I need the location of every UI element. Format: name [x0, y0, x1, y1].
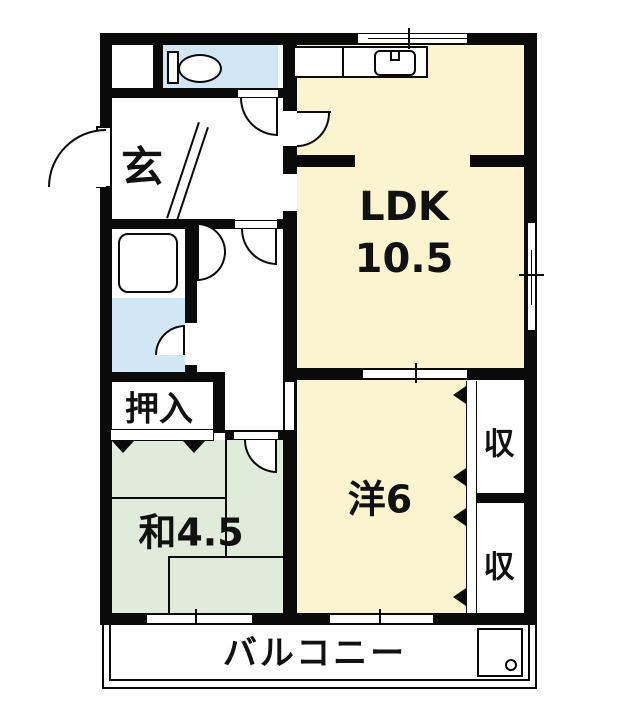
wall-bath-bottom	[100, 372, 225, 382]
wall-entrance-stub	[277, 219, 297, 229]
wall-top	[100, 33, 537, 45]
balcony-inner-line	[528, 623, 530, 681]
balcony-drain-icon	[505, 659, 517, 671]
ldk-right-window-mid	[531, 250, 532, 305]
wall-kitchen-stub-right	[470, 155, 537, 167]
western-door-opening	[284, 382, 295, 430]
storage-door-marker-icon	[453, 508, 466, 526]
closet-fusuma-track	[110, 429, 214, 441]
corridor-door-arc	[241, 229, 277, 265]
label-ldk: LDK 10.5	[355, 181, 454, 285]
hall-ldk-opening	[283, 173, 297, 212]
label-japanese-room: 和4.5	[138, 502, 243, 557]
ldk-door-leaf	[297, 111, 331, 113]
tatami-line	[168, 556, 170, 613]
storage-door-marker-icon	[453, 386, 466, 404]
toilet-bowl-icon	[178, 54, 222, 83]
wall-storeroom-right	[153, 45, 163, 98]
label-closet: 押入	[125, 382, 193, 431]
fusuma-marker-icon	[112, 441, 134, 453]
storage-door-marker-icon	[453, 588, 466, 606]
bath-door-leaf	[183, 325, 185, 355]
label-storage-top: 収	[484, 419, 515, 464]
wall-left-lower	[100, 187, 112, 625]
label-entrance: 玄	[121, 134, 163, 195]
wall-hall-ldk	[283, 45, 297, 380]
corridor-door-opening	[235, 220, 277, 229]
balcony-inner-line	[109, 623, 111, 681]
toilet-door-opening	[238, 89, 278, 98]
wall-kitchen-stub-left	[295, 155, 355, 167]
label-western-room: 洋6	[348, 469, 412, 524]
ldk-door-opening	[283, 110, 297, 147]
tatami-line	[112, 497, 225, 499]
corridor-door-leaf	[275, 229, 277, 265]
wall-left-upper	[100, 33, 112, 127]
japanese-door-leaf	[275, 440, 277, 473]
label-balcony: バルコニー	[223, 626, 407, 675]
japanese-door-opening	[234, 431, 278, 440]
kitchen-window-tick	[408, 28, 410, 49]
fusuma-marker-icon	[183, 441, 205, 453]
wall-entrance-bottom	[100, 219, 235, 229]
label-ldk-line2: 10.5	[355, 233, 454, 285]
label-ldk-line1: LDK	[355, 181, 454, 233]
kitchen-window-mid	[368, 38, 467, 39]
bath-door-opening	[185, 322, 197, 366]
kitchen-faucet-icon	[390, 50, 400, 61]
storage-door-track	[466, 381, 477, 613]
ldk-right-window-tick	[519, 274, 544, 276]
entrance-door-arc	[48, 129, 106, 187]
wall-storage-divider	[470, 493, 537, 503]
storage-door-marker-icon	[453, 468, 466, 486]
balcony-inner-line	[109, 679, 530, 681]
toilet-door-arc	[240, 98, 278, 136]
ldk-western-sliding-tick	[415, 363, 417, 383]
washing-machine-pan-icon	[118, 233, 178, 293]
label-storage-bottom: 収	[484, 542, 515, 587]
toilet-door-leaf	[276, 98, 278, 136]
floorplan-canvas: 玄 LDK 10.5 押入 和4.5 洋6 収 収 バルコニー	[0, 0, 623, 715]
balcony-drain-pan-icon	[477, 628, 523, 677]
washroom-door-arc	[197, 223, 226, 281]
wall-closet-right	[213, 372, 225, 433]
kitchen-counter-divider	[342, 47, 344, 77]
